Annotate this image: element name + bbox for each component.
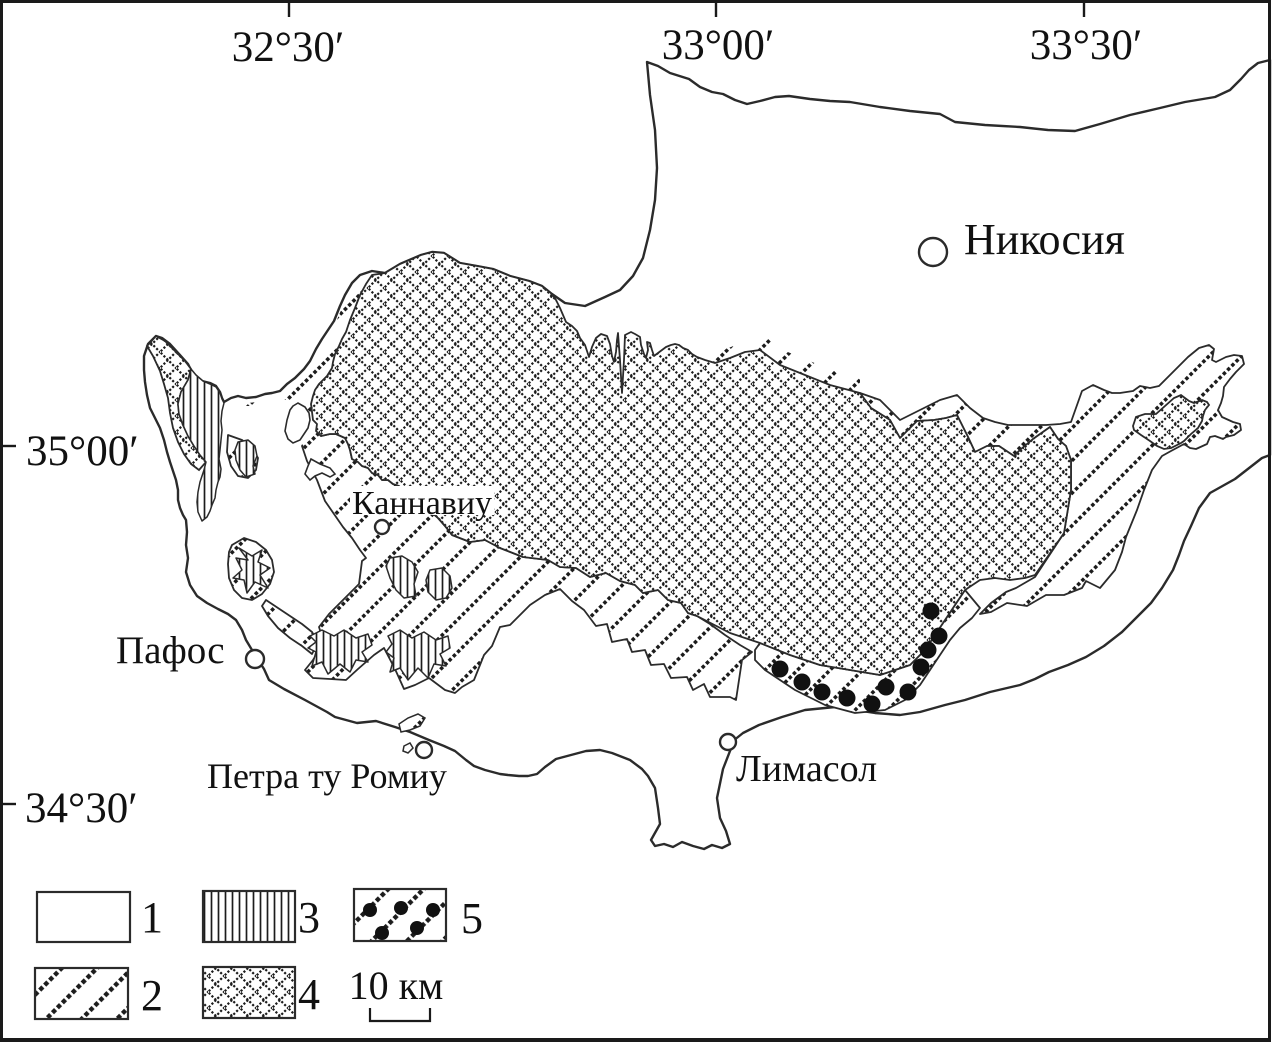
svg-text:1: 1	[141, 893, 163, 942]
svg-text:Лимасол: Лимасол	[736, 748, 877, 790]
svg-text:33°00′: 33°00′	[662, 22, 775, 69]
svg-text:3: 3	[298, 893, 320, 942]
svg-text:Пафос: Пафос	[116, 629, 225, 672]
svg-text:Никосия: Никосия	[964, 215, 1125, 264]
svg-text:10 км: 10 км	[349, 963, 444, 1008]
svg-text:2: 2	[141, 971, 163, 1020]
svg-text:35°00′: 35°00′	[26, 428, 139, 475]
svg-text:Петра ту Ромиу: Петра ту Ромиу	[207, 756, 447, 796]
svg-text:34°30′: 34°30′	[25, 785, 138, 832]
svg-text:Каннавиу: Каннавиу	[352, 485, 492, 522]
svg-text:4: 4	[298, 970, 320, 1019]
svg-text:32°30′: 32°30′	[232, 24, 345, 71]
svg-text:5: 5	[461, 894, 483, 943]
svg-text:33°30′: 33°30′	[1030, 22, 1143, 69]
